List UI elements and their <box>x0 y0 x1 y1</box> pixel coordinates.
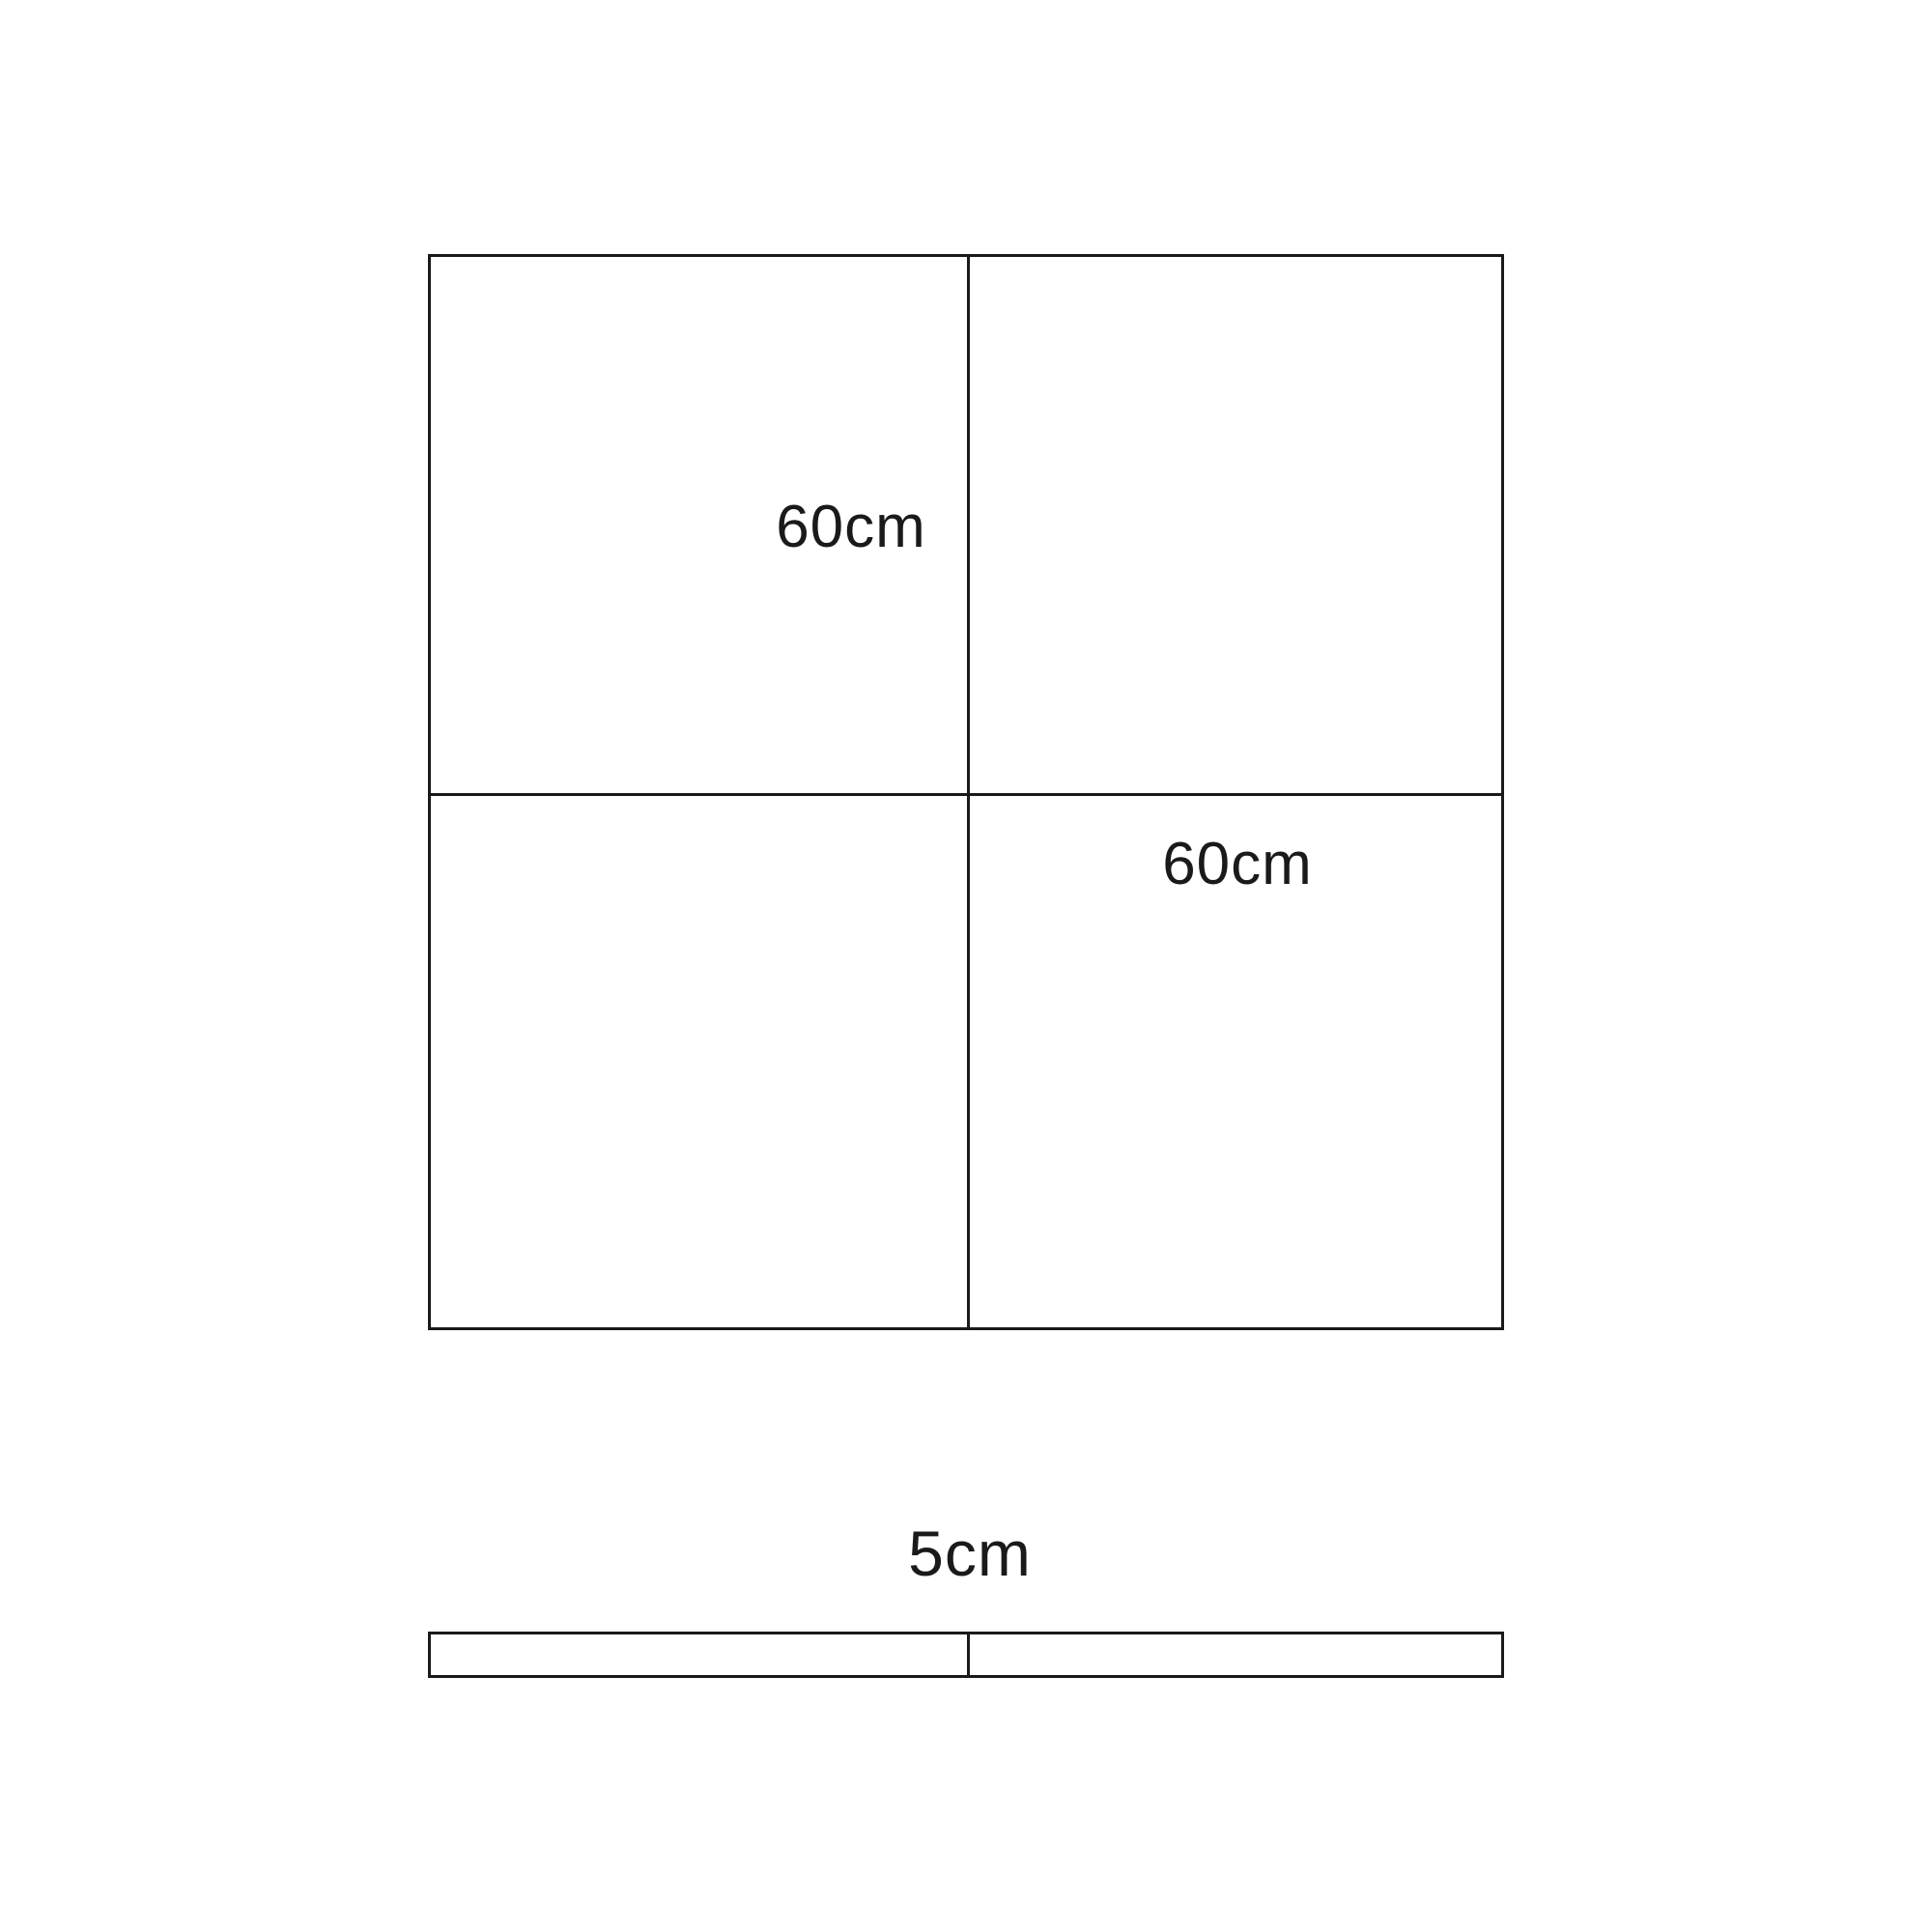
divided-square <box>428 254 1504 1330</box>
tile-dimension-diagram: 60cm 60cm 5cm <box>0 0 1932 1932</box>
strip-vertical-divider-line <box>967 1634 970 1675</box>
divided-strip <box>428 1632 1504 1678</box>
dimension-label-square-bottom-right: 60cm <box>1162 835 1313 895</box>
dimension-label-square-top-left: 60cm <box>776 497 926 557</box>
square-vertical-divider-line <box>967 257 970 1327</box>
square-horizontal-divider-line <box>431 793 1501 796</box>
dimension-label-strip: 5cm <box>908 1521 1032 1585</box>
